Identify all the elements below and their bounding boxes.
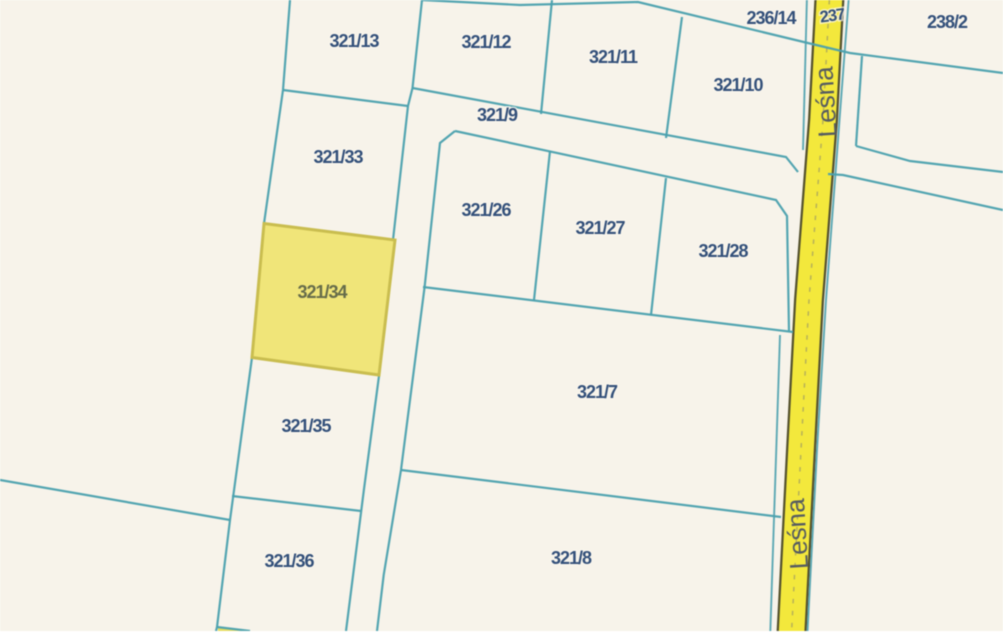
svg-text:321/28: 321/28 [698, 241, 748, 261]
svg-text:321/26: 321/26 [461, 200, 511, 220]
svg-text:321/10: 321/10 [713, 75, 763, 95]
svg-text:321/36: 321/36 [264, 551, 314, 571]
svg-text:321/33: 321/33 [313, 147, 363, 167]
svg-text:321/8: 321/8 [551, 548, 592, 568]
svg-text:321/9: 321/9 [477, 105, 518, 125]
svg-text:321/12: 321/12 [461, 32, 511, 52]
svg-text:237: 237 [819, 5, 847, 26]
svg-text:Leśna: Leśna [808, 65, 842, 138]
svg-text:Leśna: Leśna [780, 497, 814, 570]
svg-text:238/2: 238/2 [927, 12, 968, 32]
svg-text:321/13: 321/13 [329, 31, 379, 51]
svg-text:236/14: 236/14 [746, 8, 796, 28]
svg-text:321/27: 321/27 [575, 218, 625, 238]
svg-text:321/11: 321/11 [589, 47, 638, 67]
svg-text:321/7: 321/7 [577, 382, 618, 402]
svg-text:321/34: 321/34 [297, 282, 347, 302]
svg-text:321/35: 321/35 [281, 416, 331, 436]
